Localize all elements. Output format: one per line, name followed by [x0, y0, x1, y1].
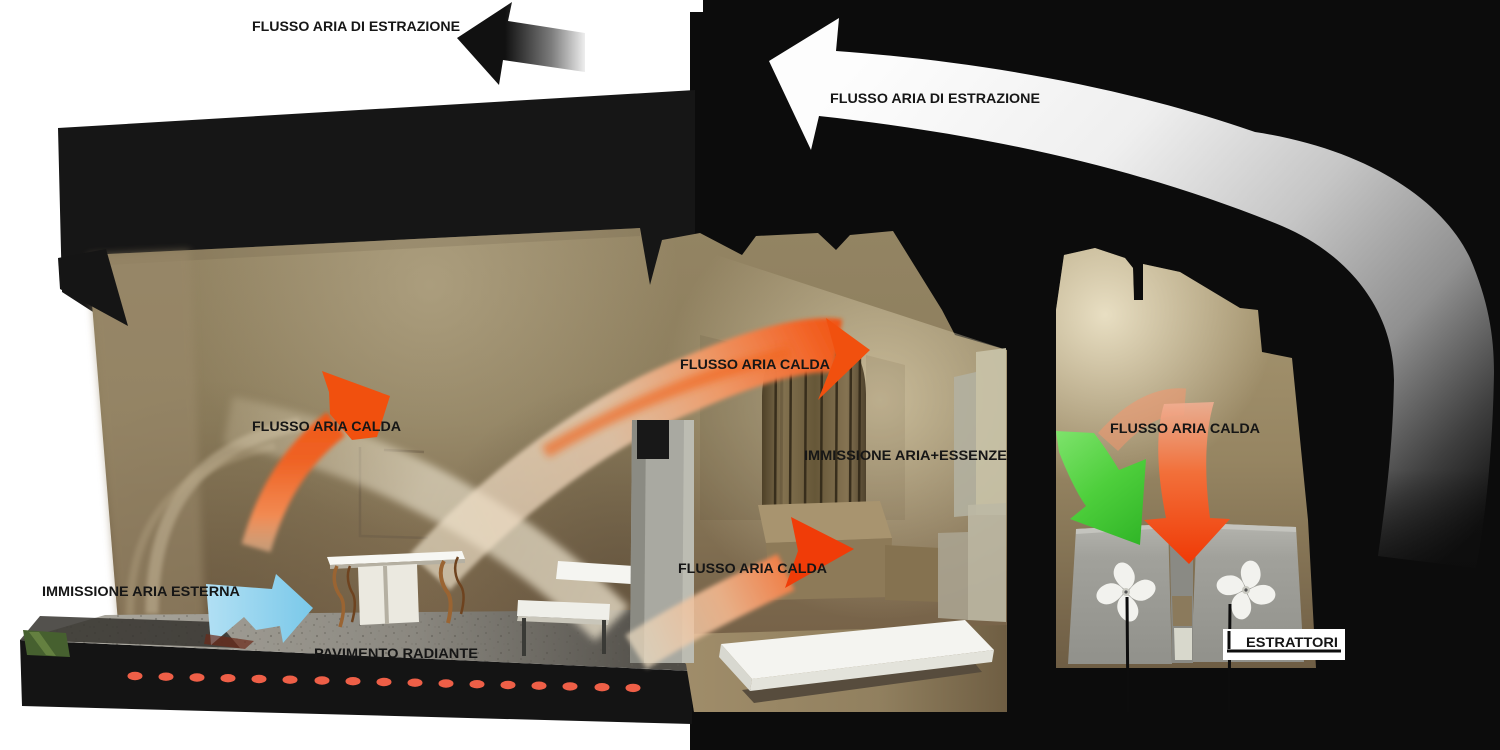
svg-text:FLUSSO ARIA CALDA: FLUSSO ARIA CALDA [1110, 420, 1260, 436]
svg-text:IMMISSIONE ARIA+ESSENZE: IMMISSIONE ARIA+ESSENZE [804, 447, 1007, 463]
svg-text:FLUSSO ARIA DI ESTRAZIONE: FLUSSO ARIA DI ESTRAZIONE [830, 90, 1040, 106]
svg-text:FLUSSO ARIA CALDA: FLUSSO ARIA CALDA [680, 356, 830, 372]
svg-text:PAVIMENTO RADIANTE: PAVIMENTO RADIANTE [314, 645, 478, 661]
svg-text:IMMISSIONE ARIA ESTERNA: IMMISSIONE ARIA ESTERNA [42, 583, 240, 599]
svg-text:FLUSSO ARIA DI ESTRAZIONE: FLUSSO ARIA DI ESTRAZIONE [252, 18, 460, 34]
svg-text:FLUSSO ARIA CALDA: FLUSSO ARIA CALDA [678, 560, 827, 576]
svg-text:FLUSSO ARIA CALDA: FLUSSO ARIA CALDA [252, 418, 401, 434]
svg-text:ESTRATTORI: ESTRATTORI [1246, 634, 1338, 650]
